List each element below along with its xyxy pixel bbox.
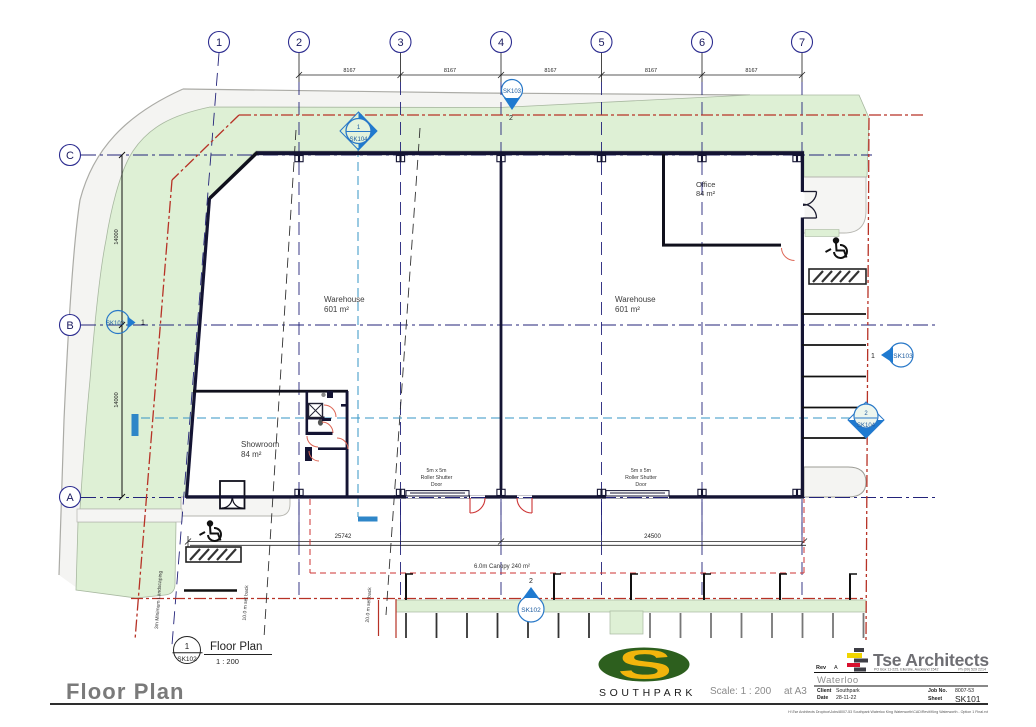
svg-text:Roller Shutter: Roller Shutter [625, 475, 657, 481]
svg-text:8167: 8167 [544, 68, 556, 74]
svg-text:84 m²: 84 m² [696, 189, 716, 198]
svg-text:SK102: SK102 [106, 321, 125, 327]
svg-text:8167: 8167 [645, 68, 657, 74]
svg-text:SK104: SK104 [349, 137, 368, 143]
svg-text:at A3: at A3 [784, 686, 807, 697]
svg-text:Warehouse: Warehouse [324, 295, 365, 304]
svg-text:SK102: SK102 [521, 607, 541, 614]
svg-text:PO Box 11-225, Ellerslie, Auck: PO Box 11-225, Ellerslie, Auckland 1542 [874, 668, 938, 672]
svg-text:Waterloo: Waterloo [817, 675, 859, 686]
svg-text:A: A [66, 492, 74, 504]
svg-text:2: 2 [529, 578, 533, 585]
svg-text:Roller Shutter: Roller Shutter [421, 475, 453, 481]
svg-text:S: S [618, 641, 673, 687]
svg-text:Rev: Rev [816, 665, 827, 671]
svg-text:1: 1 [871, 353, 875, 360]
svg-text:Date: Date [817, 695, 828, 701]
svg-text:14000: 14000 [114, 392, 120, 407]
svg-text:601 m²: 601 m² [324, 305, 349, 314]
svg-text:84 m²: 84 m² [241, 450, 262, 459]
svg-text:Scale: 1 : 200: Scale: 1 : 200 [710, 686, 772, 697]
svg-text:8167: 8167 [343, 68, 355, 74]
svg-text:C: C [66, 150, 74, 162]
svg-text:Southpark: Southpark [836, 688, 860, 694]
svg-text:Client: Client [817, 688, 832, 694]
svg-text:Warehouse: Warehouse [615, 295, 656, 304]
svg-text:1: 1 [185, 642, 190, 651]
svg-text:A: A [834, 665, 838, 671]
svg-text:Ph (09) 529 2214: Ph (09) 529 2214 [958, 668, 986, 672]
svg-text:25742: 25742 [335, 534, 352, 540]
svg-text:5m x 5m: 5m x 5m [631, 468, 651, 474]
svg-text:1: 1 [141, 320, 145, 327]
svg-text:5: 5 [598, 37, 604, 49]
svg-text:H:\Tse Architects Dropbox\Jobs: H:\Tse Architects Dropbox\Jobs\8007-53 S… [788, 710, 988, 714]
svg-text:SK102: SK102 [177, 656, 197, 663]
svg-text:B: B [66, 320, 73, 332]
svg-text:1 : 200: 1 : 200 [216, 657, 239, 666]
svg-text:14000: 14000 [114, 229, 120, 244]
svg-text:3: 3 [397, 37, 403, 49]
svg-text:6.0m Canopy 240 m²: 6.0m Canopy 240 m² [474, 564, 530, 570]
svg-text:1: 1 [216, 37, 222, 49]
svg-text:SK104: SK104 [857, 423, 876, 429]
svg-text:Door: Door [635, 482, 647, 488]
svg-text:Office: Office [696, 180, 715, 189]
svg-text:7: 7 [799, 37, 805, 49]
svg-text:SK103: SK103 [503, 89, 522, 95]
svg-text:SOUTHPARK: SOUTHPARK [599, 687, 696, 699]
svg-text:Floor Plan: Floor Plan [66, 679, 185, 704]
svg-text:601 m²: 601 m² [615, 305, 640, 314]
svg-text:24500: 24500 [644, 534, 661, 540]
svg-text:Job No.: Job No. [928, 688, 948, 694]
svg-text:Sheet: Sheet [928, 696, 942, 702]
svg-text:8167: 8167 [444, 68, 456, 74]
svg-text:SK101: SK101 [955, 694, 981, 704]
svg-text:6: 6 [699, 37, 705, 49]
svg-text:Showroom: Showroom [241, 440, 280, 449]
svg-text:2: 2 [296, 37, 302, 49]
svg-text:2: 2 [509, 115, 513, 122]
svg-text:SK103: SK103 [893, 353, 913, 360]
svg-text:4: 4 [498, 37, 504, 49]
svg-text:5m x 5m: 5m x 5m [427, 468, 447, 474]
svg-text:28-11-22: 28-11-22 [836, 695, 856, 701]
svg-text:Floor Plan: Floor Plan [210, 641, 262, 653]
svg-text:Door: Door [431, 482, 443, 488]
svg-text:8167: 8167 [745, 68, 757, 74]
